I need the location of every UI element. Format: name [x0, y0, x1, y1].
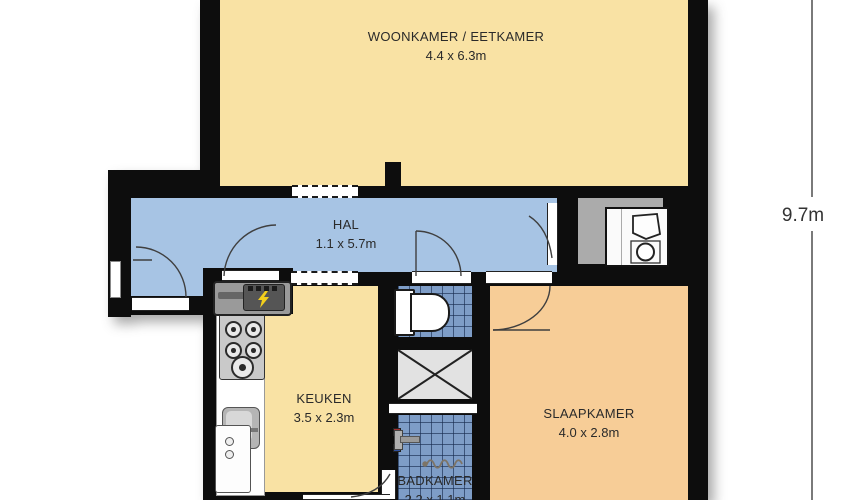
floorplan-image: WOONKAMER / EETKAMER 4.4 x 6.3m HAL 1.1 …	[0, 0, 850, 500]
room-dimensions: 4.4 x 6.3m	[368, 48, 544, 64]
room-name: SLAAPKAMER	[543, 406, 634, 422]
room-dimensions: 3.5 x 2.3m	[294, 410, 355, 426]
height-dimension-label: 9.7m	[782, 205, 824, 227]
room-label-living: WOONKAMER / EETKAMER 4.4 x 6.3m	[368, 29, 544, 65]
drain-pipe-icon	[423, 460, 462, 468]
room-label-hall: HAL 1.1 x 5.7m	[316, 217, 377, 253]
room-label-bathroom: BADKAMER 2.2 x 1.1m	[397, 473, 472, 500]
shaft-cross-icon	[398, 350, 472, 399]
room-name: WOONKAMER / EETKAMER	[368, 29, 544, 45]
room-dimensions: 2.2 x 1.1m	[397, 492, 472, 500]
floorplan: WOONKAMER / EETKAMER 4.4 x 6.3m HAL 1.1 …	[0, 0, 850, 500]
room-name: HAL	[316, 217, 377, 233]
room-dimensions: 4.0 x 2.8m	[543, 425, 634, 441]
room-label-kitchen: KEUKEN 3.5 x 2.3m	[294, 391, 355, 427]
dimension-line	[811, 0, 813, 197]
dimension-line	[811, 231, 813, 500]
room-name: KEUKEN	[294, 391, 355, 407]
room-label-bedroom: SLAAPKAMER 4.0 x 2.8m	[543, 406, 634, 442]
door-arc-icon	[0, 0, 850, 500]
room-dimensions: 1.1 x 5.7m	[316, 236, 377, 252]
room-name: BADKAMER	[397, 473, 472, 489]
